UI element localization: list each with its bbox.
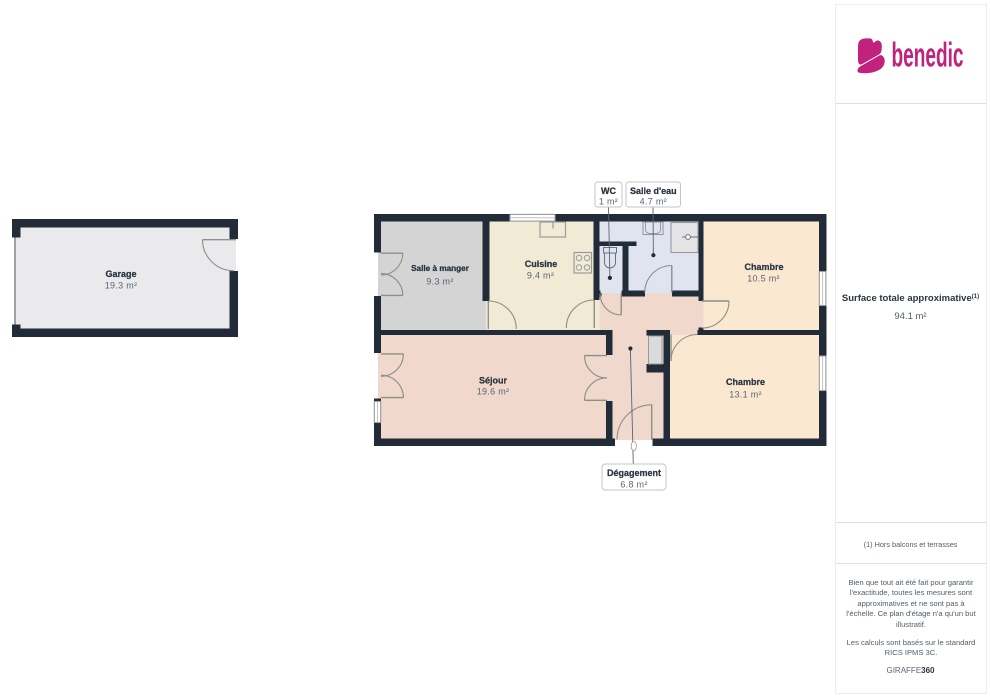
svg-text:WC: WC xyxy=(601,186,616,196)
svg-text:benedic: benedic xyxy=(892,37,964,75)
svg-text:9.4 m²: 9.4 m² xyxy=(527,271,554,281)
svg-text:Chambre: Chambre xyxy=(726,377,765,387)
svg-text:1 m²: 1 m² xyxy=(599,197,618,207)
svg-text:Séjour: Séjour xyxy=(479,376,508,386)
svg-text:4.7 m²: 4.7 m² xyxy=(640,197,667,207)
svg-text:6.8 m²: 6.8 m² xyxy=(620,480,647,490)
svg-text:19.6 m²: 19.6 m² xyxy=(477,387,510,397)
svg-text:Chambre: Chambre xyxy=(744,262,783,272)
svg-text:Cuisine: Cuisine xyxy=(525,259,558,269)
svg-text:Dégagement: Dégagement xyxy=(607,468,661,478)
svg-text:10.5 m²: 10.5 m² xyxy=(747,274,780,284)
svg-text:Salle d'eau: Salle d'eau xyxy=(630,186,677,196)
svg-text:Salle à manger: Salle à manger xyxy=(411,264,470,273)
svg-text:9.3 m²: 9.3 m² xyxy=(426,277,453,287)
svg-text:Garage: Garage xyxy=(105,269,136,279)
svg-text:13.1 m²: 13.1 m² xyxy=(729,390,762,400)
svg-text:19.3 m²: 19.3 m² xyxy=(105,281,138,291)
